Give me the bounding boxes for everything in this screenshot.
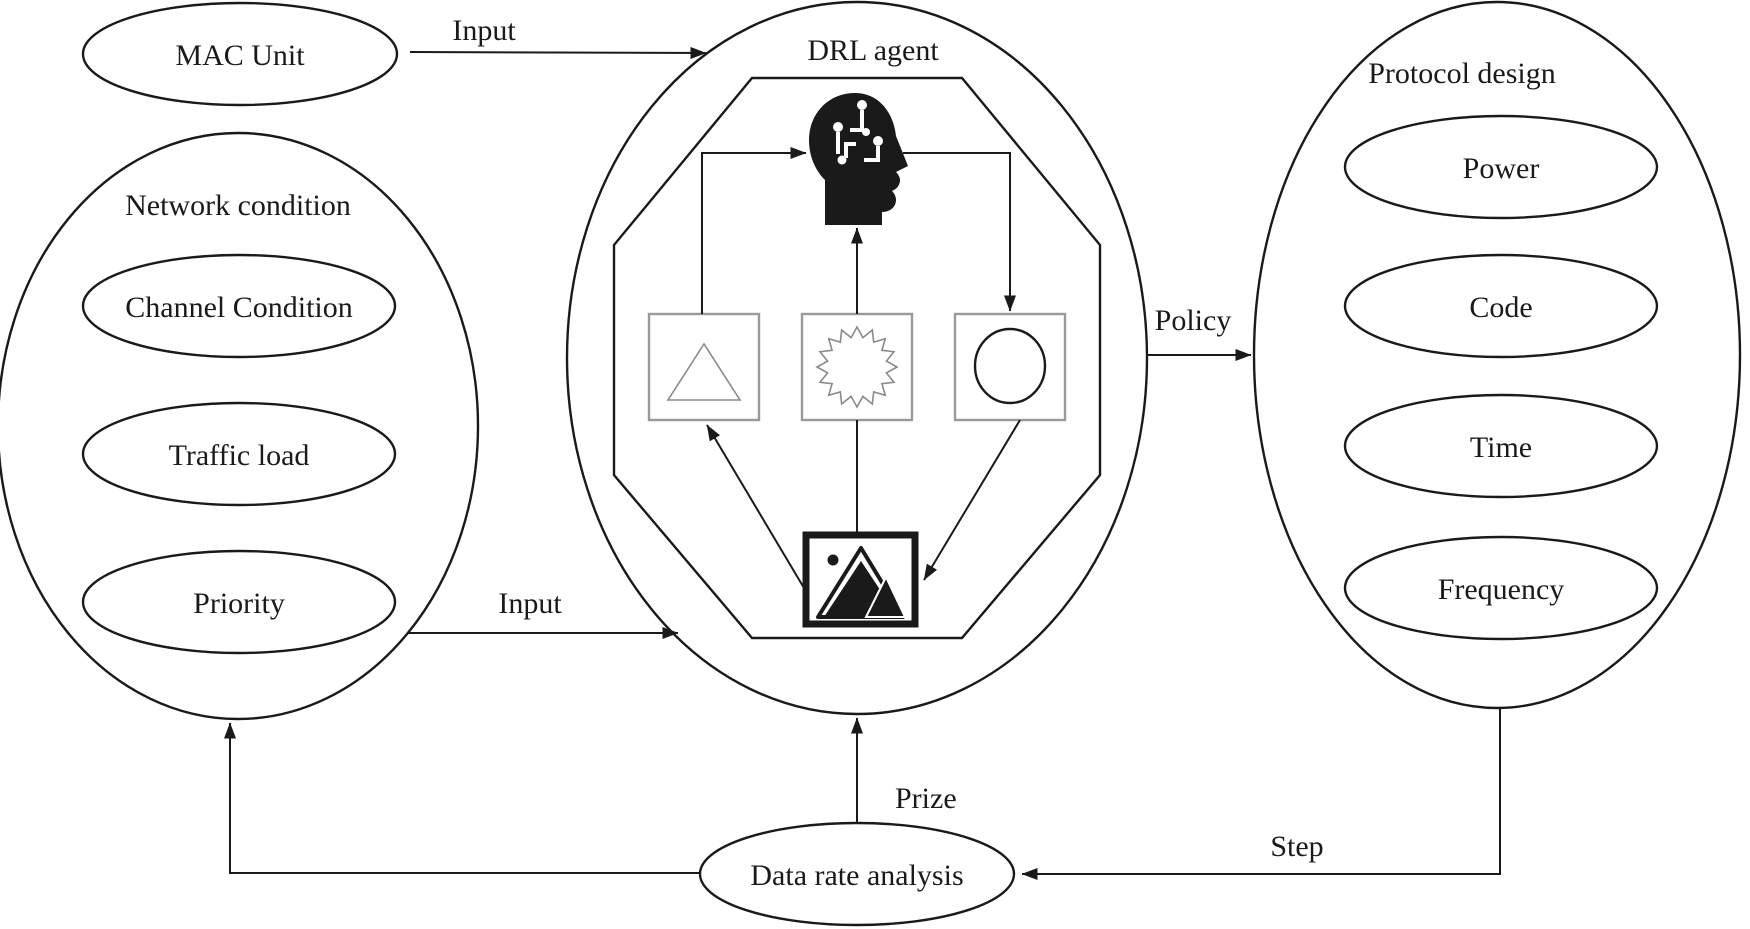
environment-to-state-arrow: [707, 425, 804, 588]
state-to-agent-arrow: [702, 153, 806, 314]
priority-label: Priority: [193, 587, 285, 620]
time-label: Time: [1470, 431, 1532, 464]
frequency-label: Frequency: [1438, 573, 1565, 606]
circle-icon: [975, 329, 1045, 403]
mac-unit-label: MAC Unit: [175, 39, 305, 72]
drl-agent-label: DRL agent: [807, 34, 939, 67]
input-top-arrow: [410, 52, 706, 53]
agent-to-action-arrow: [903, 153, 1010, 311]
data-rate-label: Data rate analysis: [750, 859, 963, 892]
step-label: Step: [1270, 830, 1323, 863]
code-label: Code: [1469, 291, 1532, 324]
protocol-design-label: Protocol design: [1368, 57, 1556, 90]
network-condition-label: Network condition: [125, 189, 351, 222]
step-arrow: [1022, 708, 1500, 874]
ai-head-circuit-icon: [809, 93, 908, 225]
channel-condition-label: Channel Condition: [125, 291, 353, 324]
starburst-icon: [817, 327, 897, 407]
prize-label: Prize: [895, 782, 957, 815]
environment-image-icon: [806, 535, 915, 624]
diagram-canvas: MAC Unit Network condition Channel Condi…: [0, 0, 1750, 929]
power-label: Power: [1463, 152, 1540, 185]
input-top-label: Input: [452, 14, 516, 47]
input-bottom-label: Input: [498, 587, 562, 620]
drl-protocol-diagram: MAC Unit Network condition Channel Condi…: [0, 0, 1750, 929]
feedback-to-network-arrow: [230, 723, 700, 873]
action-to-environment-arrow: [924, 420, 1020, 580]
traffic-load-label: Traffic load: [169, 439, 310, 472]
policy-label: Policy: [1155, 304, 1232, 337]
